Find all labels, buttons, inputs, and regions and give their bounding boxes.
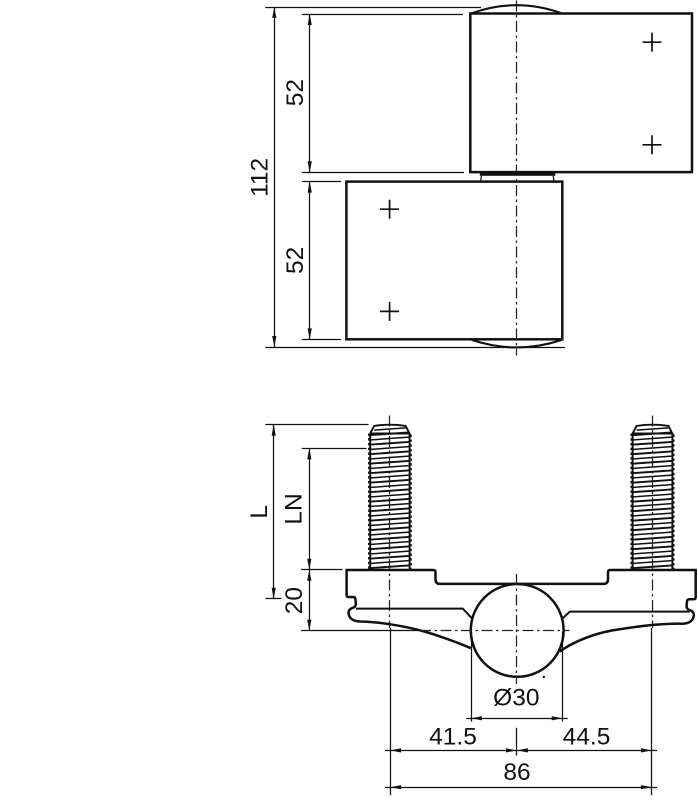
svg-text:52: 52 [282, 79, 309, 106]
svg-text:44.5: 44.5 [563, 723, 611, 750]
svg-text:86: 86 [503, 759, 530, 786]
svg-text:41.5: 41.5 [429, 723, 477, 750]
svg-text:112: 112 [246, 158, 273, 197]
svg-text:LN: LN [280, 493, 307, 524]
svg-text:52: 52 [282, 247, 309, 274]
svg-text:Ø30: Ø30 [493, 685, 539, 712]
svg-text:20: 20 [281, 587, 308, 614]
svg-text:L: L [246, 505, 273, 519]
